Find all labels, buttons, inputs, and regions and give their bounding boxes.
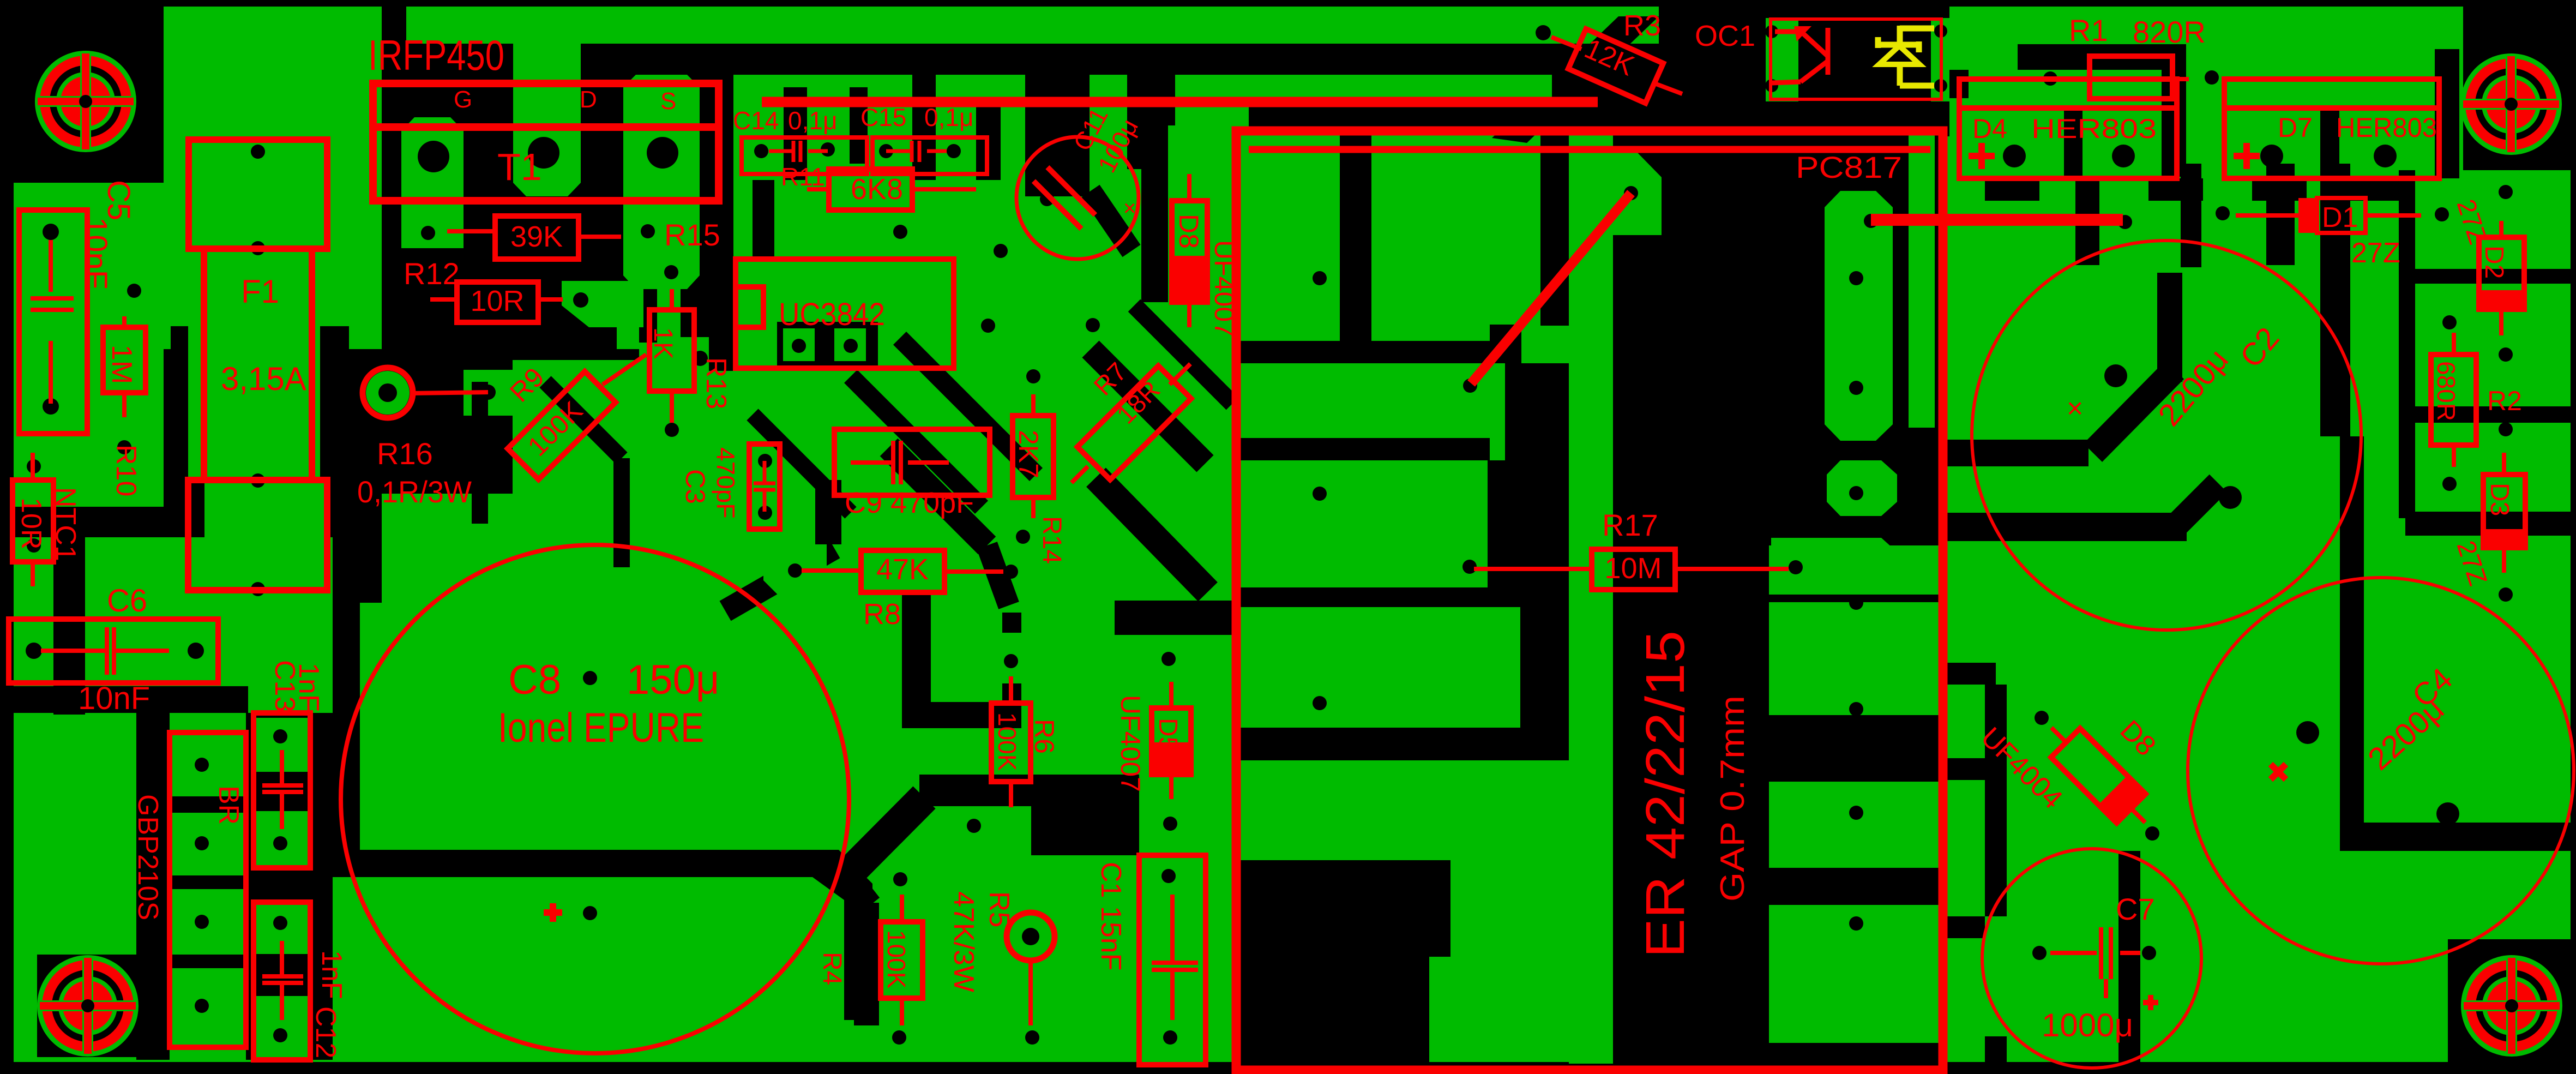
svg-text:R4: R4 (817, 952, 846, 985)
svg-text:10R: 10R (470, 285, 524, 317)
svg-text:HER803: HER803 (2031, 113, 2157, 144)
svg-text:D7: D7 (2278, 112, 2313, 143)
svg-text:1nF: 1nF (316, 950, 347, 999)
svg-text:C14: C14 (733, 106, 779, 135)
svg-text:C6: C6 (107, 583, 147, 619)
svg-text:3,15A: 3,15A (221, 361, 306, 397)
svg-text:C8: C8 (508, 657, 561, 703)
svg-text:R6: R6 (1029, 719, 1060, 754)
svg-text:2K7: 2K7 (1013, 430, 1044, 478)
svg-text:R16: R16 (377, 436, 433, 471)
svg-text:820R: 820R (2133, 15, 2206, 49)
svg-text:D2: D2 (2479, 245, 2508, 279)
svg-text:UF4007: UF4007 (1209, 240, 1239, 337)
svg-text:GAP 0.7mm: GAP 0.7mm (1714, 695, 1752, 902)
svg-text:C7: C7 (2116, 892, 2155, 926)
svg-text:C15: C15 (860, 103, 906, 131)
svg-text:R14: R14 (1037, 516, 1066, 564)
svg-text:0,1R/3W: 0,1R/3W (357, 475, 472, 509)
svg-text:R3: R3 (1623, 9, 1661, 42)
svg-text:10R: 10R (15, 497, 47, 549)
svg-text:1K: 1K (648, 327, 677, 359)
svg-text:R2: R2 (2487, 386, 2522, 416)
svg-text:C1 15nF: C1 15nF (1095, 862, 1127, 970)
svg-text:D: D (580, 86, 597, 113)
svg-text:1000μ: 1000μ (2042, 1007, 2133, 1043)
svg-text:0,1μ: 0,1μ (924, 103, 973, 131)
svg-text:27Z: 27Z (2351, 237, 2400, 269)
svg-text:ER 42/22/15: ER 42/22/15 (1635, 631, 1696, 958)
svg-text:D4: D4 (1972, 113, 2007, 144)
svg-text:D3: D3 (2485, 483, 2514, 516)
svg-text:C3: C3 (680, 469, 711, 504)
svg-text:150μ: 150μ (627, 657, 720, 703)
svg-text:D1: D1 (2322, 202, 2358, 233)
svg-text:BR: BR (213, 785, 244, 825)
svg-text:HER803: HER803 (2336, 112, 2437, 143)
svg-text:C9 470pF: C9 470pF (845, 487, 974, 519)
svg-text:6K8: 6K8 (851, 173, 903, 206)
svg-text:IRFP450: IRFP450 (368, 31, 504, 79)
svg-text:PC817: PC817 (1796, 150, 1902, 184)
svg-text:10nF: 10nF (78, 217, 113, 289)
svg-text:GBP210S: GBP210S (132, 794, 164, 920)
svg-text:100K: 100K (993, 712, 1021, 771)
svg-text:OC1: OC1 (1695, 20, 1755, 52)
svg-text:10M: 10M (1604, 552, 1662, 585)
svg-text:100K: 100K (882, 930, 911, 989)
svg-text:G: G (454, 86, 472, 113)
svg-text:39K: 39K (510, 220, 563, 253)
svg-text:D8: D8 (1173, 214, 1204, 249)
svg-text:UF4007: UF4007 (1115, 695, 1146, 792)
svg-text:R17: R17 (1602, 508, 1658, 542)
svg-text:UC3842: UC3842 (779, 297, 885, 332)
svg-text:R12: R12 (404, 256, 460, 291)
svg-text:680R: 680R (2432, 361, 2460, 421)
svg-text:470pF: 470pF (712, 447, 740, 518)
svg-text:10nF: 10nF (78, 681, 150, 716)
svg-text:1nF: 1nF (293, 663, 324, 712)
svg-text:47K/3W: 47K/3W (948, 891, 979, 992)
svg-text:C5: C5 (101, 180, 136, 220)
svg-text:47K: 47K (876, 553, 929, 586)
svg-text:R10: R10 (110, 445, 142, 496)
svg-text:0,1μ: 0,1μ (788, 106, 837, 135)
svg-text:R8: R8 (863, 598, 901, 631)
svg-text:T1: T1 (497, 146, 542, 188)
svg-text:D5: D5 (1153, 718, 1182, 751)
svg-text:1M: 1M (106, 345, 137, 384)
svg-text:R15: R15 (664, 218, 720, 252)
svg-text:R5: R5 (983, 891, 1015, 927)
svg-text:×: × (1123, 196, 1136, 220)
svg-text:R1: R1 (2069, 13, 2108, 47)
svg-text:S: S (660, 88, 676, 115)
svg-text:F1: F1 (241, 273, 279, 310)
svg-text:Ionel EPURE: Ionel EPURE (498, 705, 704, 751)
svg-text:R11: R11 (781, 163, 825, 191)
svg-text:×: × (2067, 393, 2083, 424)
svg-text:C12: C12 (310, 1006, 341, 1058)
svg-text:R13: R13 (700, 357, 732, 409)
